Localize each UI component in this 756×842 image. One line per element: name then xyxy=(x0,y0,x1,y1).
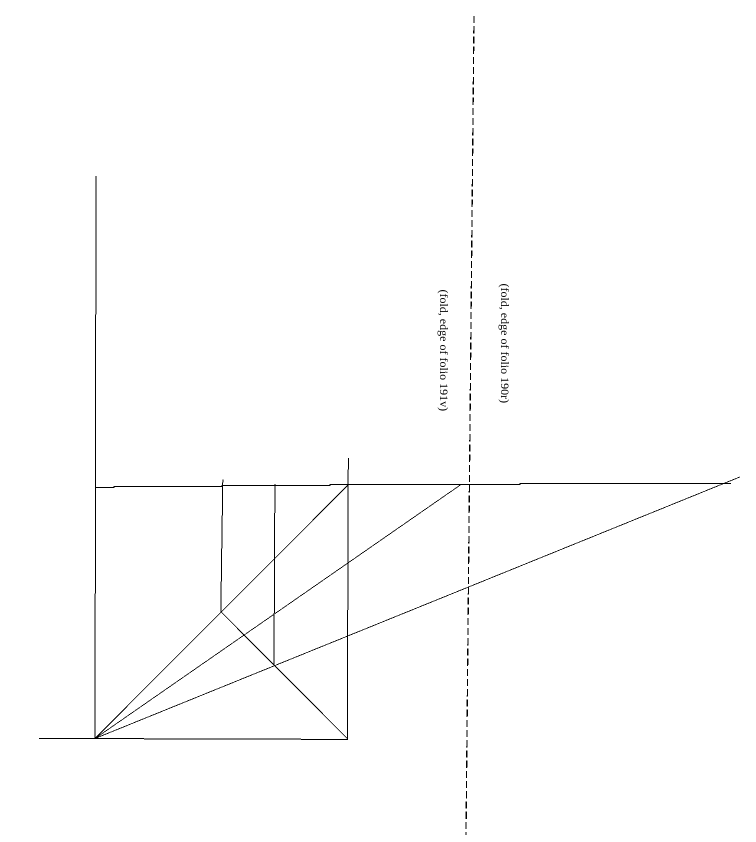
svg-text:(fold, edge of folio 191v): (fold, edge of folio 191v) xyxy=(437,289,451,411)
svg-text:(fold, edge of folio 190r): (fold, edge of folio 190r) xyxy=(498,283,512,403)
